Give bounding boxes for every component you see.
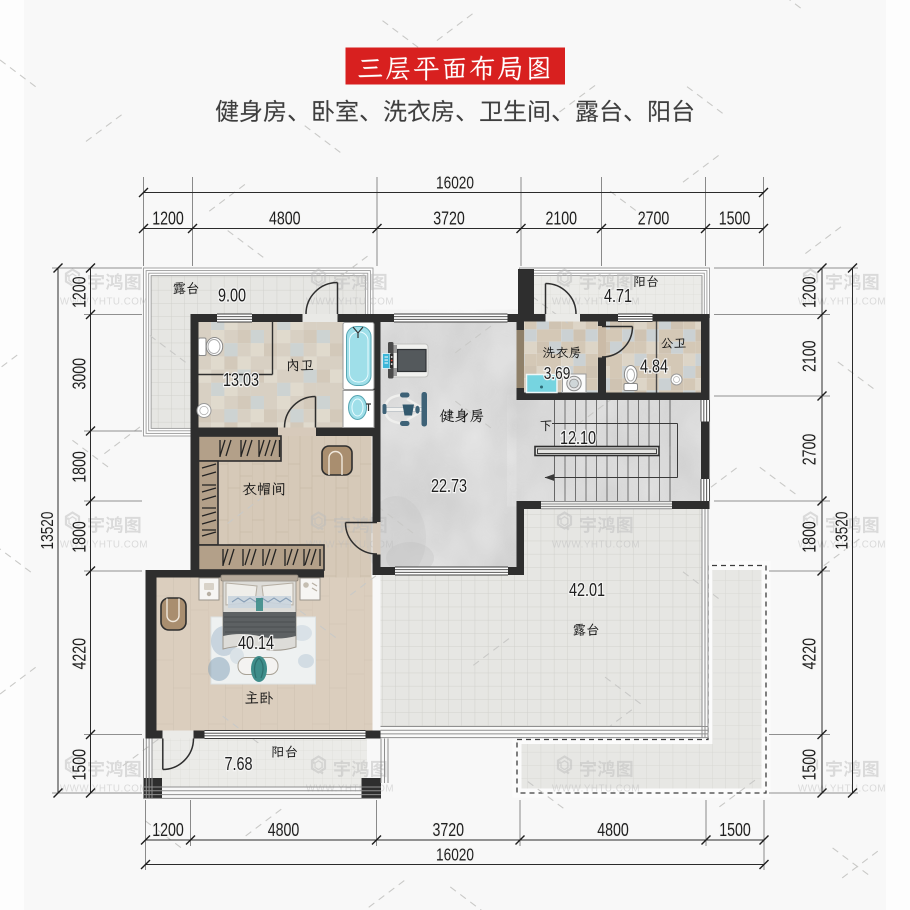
svg-text:2700: 2700: [638, 209, 670, 229]
svg-text:4220: 4220: [70, 638, 90, 670]
svg-text:1500: 1500: [800, 749, 820, 781]
svg-text:1200: 1200: [152, 209, 184, 229]
svg-text:4800: 4800: [597, 820, 629, 840]
svg-text:3720: 3720: [433, 209, 465, 229]
svg-text:42.01: 42.01: [569, 579, 605, 600]
svg-text:1800: 1800: [800, 521, 820, 553]
svg-text:2700: 2700: [800, 434, 820, 466]
svg-text:1200: 1200: [70, 276, 90, 308]
svg-text:2100: 2100: [800, 340, 820, 372]
svg-text:1500: 1500: [70, 749, 90, 781]
svg-text:3000: 3000: [70, 358, 90, 390]
svg-text:1200: 1200: [800, 276, 820, 308]
svg-text:13520: 13520: [39, 511, 58, 549]
svg-text:7.68: 7.68: [224, 753, 252, 774]
svg-text:1500: 1500: [719, 209, 751, 229]
svg-text:13.03: 13.03: [223, 369, 259, 390]
svg-text:4800: 4800: [268, 820, 300, 840]
svg-text:9.00: 9.00: [218, 285, 246, 306]
svg-text:12.10: 12.10: [560, 427, 596, 448]
svg-text:22.73: 22.73: [431, 475, 467, 496]
svg-text:1500: 1500: [719, 820, 751, 840]
svg-text:40.14: 40.14: [238, 632, 274, 653]
svg-text:4220: 4220: [800, 638, 820, 670]
svg-text:13520: 13520: [833, 511, 852, 549]
svg-text:3720: 3720: [432, 820, 464, 840]
svg-text:4800: 4800: [269, 209, 301, 229]
svg-text:4.84: 4.84: [640, 356, 668, 377]
svg-text:4.71: 4.71: [604, 285, 632, 306]
svg-text:16020: 16020: [436, 174, 474, 193]
svg-text:3.69: 3.69: [544, 365, 571, 384]
svg-text:1200: 1200: [152, 820, 184, 840]
svg-text:1800: 1800: [70, 451, 90, 483]
svg-text:16020: 16020: [436, 846, 474, 865]
svg-text:2100: 2100: [545, 209, 577, 229]
svg-text:1800: 1800: [70, 521, 90, 553]
